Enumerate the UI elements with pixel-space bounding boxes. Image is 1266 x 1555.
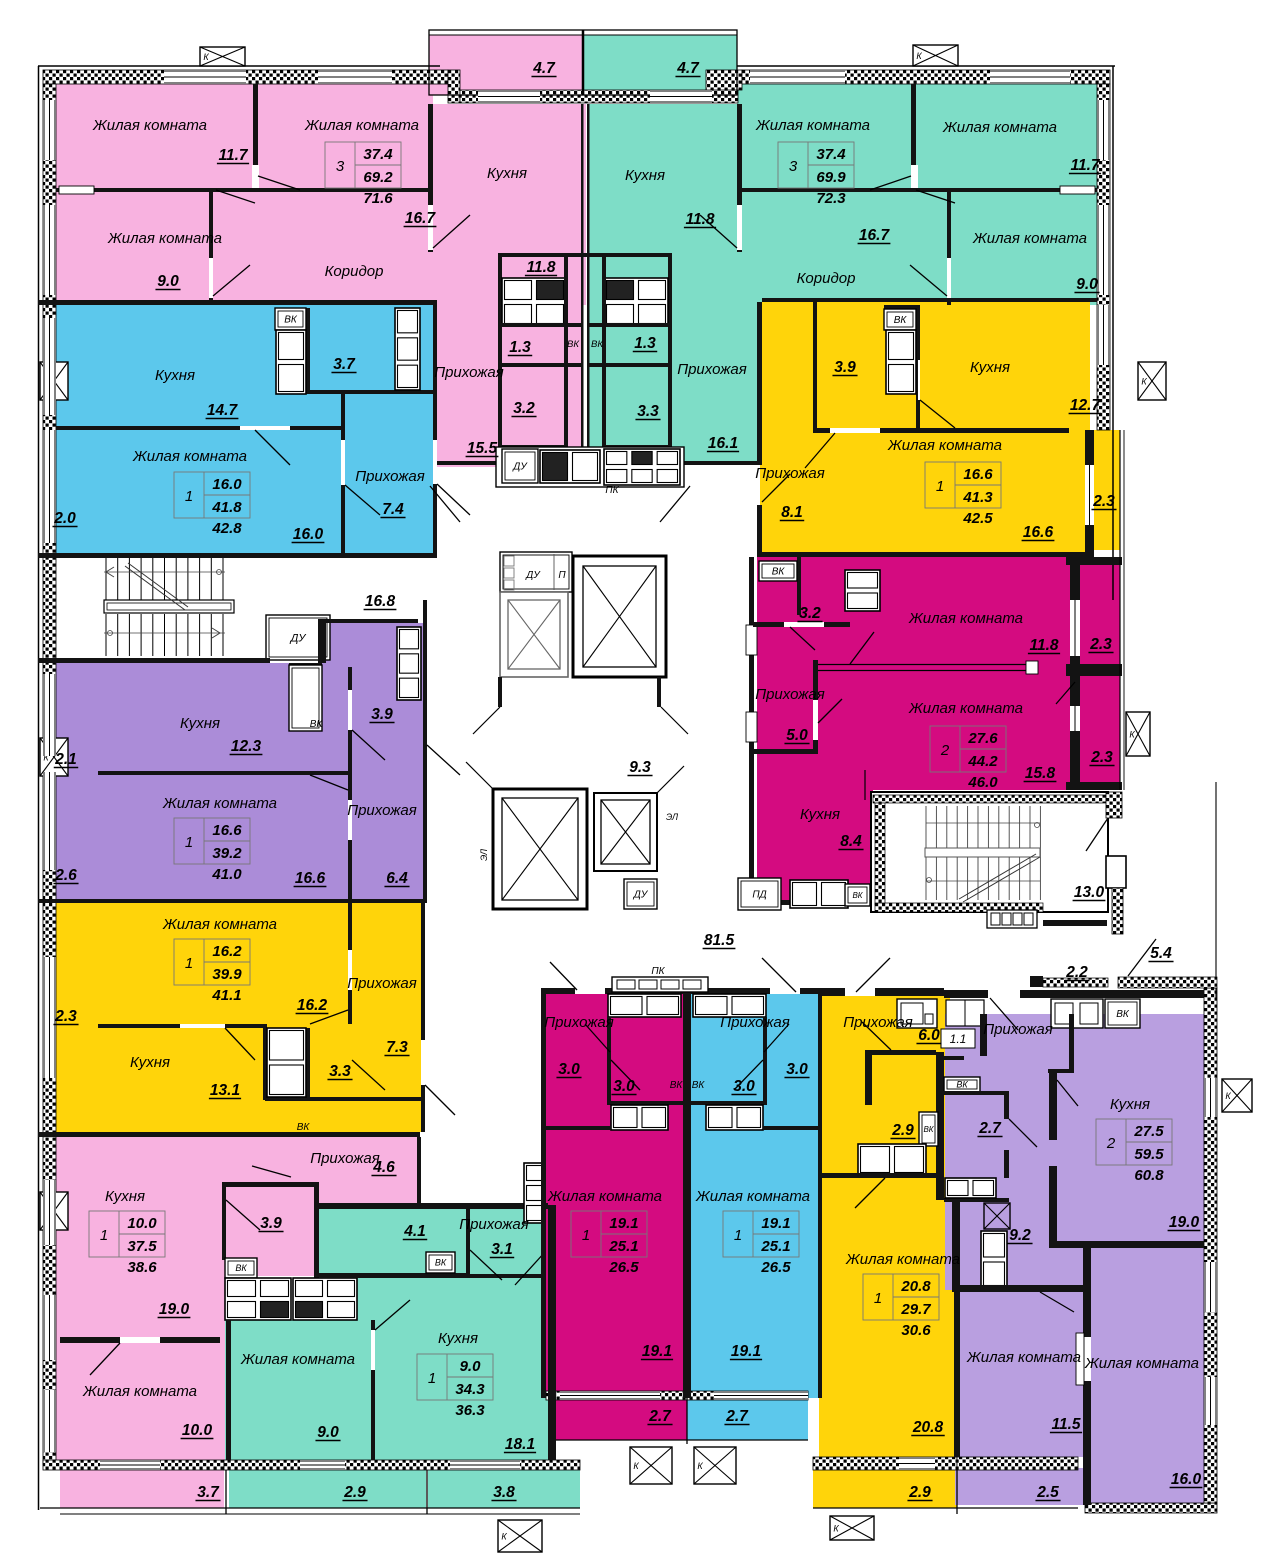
svg-text:1: 1 (185, 834, 193, 851)
svg-text:4.7: 4.7 (676, 60, 700, 77)
svg-text:Прихожая: Прихожая (677, 361, 747, 378)
svg-text:1: 1 (874, 1290, 882, 1307)
svg-text:Кухня: Кухня (800, 806, 840, 823)
svg-text:ПК: ПК (651, 966, 665, 977)
svg-text:37.5: 37.5 (127, 1238, 157, 1255)
svg-text:К: К (833, 1524, 839, 1534)
svg-text:К: К (1225, 1091, 1231, 1101)
svg-text:11.8: 11.8 (526, 259, 555, 276)
svg-text:2.5: 2.5 (1036, 1484, 1059, 1501)
svg-text:3.7: 3.7 (197, 1484, 220, 1501)
svg-text:3.0: 3.0 (613, 1078, 635, 1095)
svg-text:ВК: ВК (692, 1080, 706, 1091)
svg-text:Жилая комната: Жилая комната (162, 795, 277, 812)
svg-text:71.6: 71.6 (363, 190, 393, 207)
svg-text:16.6: 16.6 (295, 870, 326, 887)
svg-text:ВК: ВК (435, 1258, 447, 1268)
svg-text:ВК: ВК (1116, 1009, 1130, 1020)
svg-text:9.0: 9.0 (460, 1358, 482, 1375)
svg-text:41.8: 41.8 (211, 499, 242, 516)
svg-text:19.1: 19.1 (642, 1343, 672, 1360)
svg-text:Прихожая: Прихожая (983, 1021, 1053, 1038)
svg-text:ЭЛ: ЭЛ (666, 812, 679, 822)
svg-text:16.6: 16.6 (963, 466, 993, 483)
svg-text:9.0: 9.0 (1076, 276, 1098, 293)
svg-text:11.5: 11.5 (1051, 1416, 1080, 1433)
svg-text:16.0: 16.0 (1171, 1471, 1202, 1488)
svg-text:2.2: 2.2 (1065, 964, 1088, 981)
svg-text:ДУ: ДУ (633, 890, 649, 901)
svg-text:Кухня: Кухня (438, 1330, 478, 1347)
svg-text:37.4: 37.4 (816, 146, 846, 163)
svg-text:2.9: 2.9 (908, 1484, 931, 1501)
svg-text:19.1: 19.1 (761, 1215, 790, 1232)
svg-text:36.3: 36.3 (455, 1402, 485, 1419)
svg-text:Кухня: Кухня (970, 359, 1010, 376)
svg-text:3.7: 3.7 (333, 356, 356, 373)
svg-text:44.2: 44.2 (967, 753, 998, 770)
svg-text:16.0: 16.0 (212, 476, 242, 493)
svg-text:6.0: 6.0 (918, 1027, 940, 1044)
svg-text:2.3: 2.3 (1092, 493, 1115, 510)
svg-text:Жилая комната: Жилая комната (942, 119, 1057, 136)
svg-text:3.2: 3.2 (513, 400, 535, 417)
svg-text:3.9: 3.9 (260, 1215, 282, 1232)
svg-text:5.4: 5.4 (1150, 945, 1172, 962)
svg-text:ВК: ВК (235, 1263, 247, 1273)
svg-text:ВК: ВК (772, 567, 786, 578)
svg-text:ДУ: ДУ (525, 570, 541, 581)
svg-text:3.0: 3.0 (786, 1061, 808, 1078)
svg-text:5.0: 5.0 (786, 727, 808, 744)
svg-text:3.1: 3.1 (491, 1241, 513, 1258)
svg-text:7.4: 7.4 (382, 501, 404, 518)
svg-text:18.1: 18.1 (505, 1436, 535, 1453)
svg-text:41.0: 41.0 (211, 866, 242, 883)
svg-text:Прихожая: Прихожая (843, 1014, 913, 1031)
svg-text:19.0: 19.0 (1169, 1214, 1200, 1231)
svg-text:К: К (501, 1532, 507, 1542)
svg-text:10.0: 10.0 (182, 1422, 213, 1439)
svg-text:1: 1 (936, 478, 944, 495)
svg-text:27.6: 27.6 (967, 730, 998, 747)
svg-text:3.0: 3.0 (733, 1078, 755, 1095)
svg-text:2.7: 2.7 (725, 1408, 749, 1425)
svg-text:16.2: 16.2 (212, 943, 242, 960)
svg-text:8.4: 8.4 (840, 833, 862, 850)
svg-text:9.0: 9.0 (157, 273, 179, 290)
svg-text:Жилая комната: Жилая комната (132, 448, 247, 465)
svg-text:ЭЛ: ЭЛ (479, 848, 489, 861)
svg-text:ВК: ВК (297, 1122, 311, 1133)
svg-text:25.1: 25.1 (608, 1238, 638, 1255)
svg-text:42.5: 42.5 (962, 510, 993, 527)
svg-text:Жилая комната: Жилая комната (887, 437, 1002, 454)
svg-text:38.6: 38.6 (127, 1259, 157, 1276)
svg-text:11.7: 11.7 (218, 147, 248, 164)
svg-text:16.6: 16.6 (212, 822, 242, 839)
svg-text:81.5: 81.5 (704, 932, 735, 949)
svg-text:41.1: 41.1 (211, 987, 241, 1004)
svg-text:Кухня: Кухня (487, 165, 527, 182)
svg-text:9.2: 9.2 (1009, 1227, 1031, 1244)
svg-text:Кухня: Кухня (155, 367, 195, 384)
svg-text:1.3: 1.3 (634, 335, 656, 352)
svg-text:ВК: ВК (567, 339, 580, 350)
svg-text:Коридор: Коридор (325, 263, 384, 280)
svg-text:9.3: 9.3 (629, 759, 651, 776)
svg-text:3.0: 3.0 (558, 1061, 580, 1078)
svg-text:2.0: 2.0 (53, 510, 76, 527)
svg-text:1: 1 (428, 1370, 436, 1387)
svg-text:2.3: 2.3 (54, 1008, 77, 1025)
svg-text:2.7: 2.7 (978, 1120, 1002, 1137)
svg-text:8.1: 8.1 (781, 504, 803, 521)
svg-text:16.7: 16.7 (405, 210, 437, 227)
svg-text:16.7: 16.7 (859, 227, 891, 244)
svg-text:1: 1 (185, 955, 193, 972)
svg-text:13.1: 13.1 (210, 1082, 240, 1099)
svg-text:4.1: 4.1 (403, 1223, 426, 1240)
svg-text:ВК: ВК (310, 719, 324, 730)
svg-text:26.5: 26.5 (760, 1259, 791, 1276)
svg-text:7.3: 7.3 (386, 1039, 408, 1056)
svg-text:2.9: 2.9 (891, 1122, 914, 1139)
svg-text:Кухня: Кухня (625, 167, 665, 184)
svg-text:Жилая комната: Жилая комната (845, 1251, 960, 1268)
svg-text:Кухня: Кухня (105, 1188, 145, 1205)
svg-text:3.3: 3.3 (637, 403, 659, 420)
svg-text:39.9: 39.9 (212, 966, 242, 983)
svg-text:69.9: 69.9 (816, 169, 846, 186)
svg-text:Прихожая: Прихожая (720, 1014, 790, 1031)
svg-text:Прихожая: Прихожая (544, 1014, 614, 1031)
svg-text:19.0: 19.0 (159, 1301, 190, 1318)
svg-text:30.6: 30.6 (901, 1322, 931, 1339)
svg-text:19.1: 19.1 (731, 1343, 761, 1360)
svg-text:ДУ: ДУ (512, 462, 528, 473)
svg-text:Прихожая: Прихожая (755, 465, 825, 482)
svg-text:К: К (203, 52, 209, 62)
svg-text:59.5: 59.5 (1134, 1146, 1164, 1163)
svg-text:Прихожая: Прихожая (347, 802, 417, 819)
svg-text:Жилая комната: Жилая комната (240, 1351, 355, 1368)
svg-text:16.8: 16.8 (365, 593, 396, 610)
svg-text:15.8: 15.8 (1025, 765, 1056, 782)
svg-text:Прихожая: Прихожая (459, 1216, 529, 1233)
svg-text:1: 1 (582, 1227, 590, 1244)
svg-text:29.7: 29.7 (900, 1301, 931, 1318)
svg-text:Прихожая: Прихожая (310, 1150, 380, 1167)
svg-text:9.0: 9.0 (317, 1424, 339, 1441)
svg-text:ПД: ПД (752, 890, 766, 901)
svg-text:20.8: 20.8 (900, 1278, 931, 1295)
svg-text:34.3: 34.3 (455, 1381, 485, 1398)
svg-text:2.3: 2.3 (1089, 636, 1112, 653)
svg-text:Жилая комната: Жилая комната (972, 230, 1087, 247)
svg-text:16.6: 16.6 (1023, 524, 1054, 541)
svg-text:Коридор: Коридор (797, 270, 856, 287)
svg-text:1.3: 1.3 (509, 339, 531, 356)
svg-text:69.2: 69.2 (363, 169, 393, 186)
svg-text:3.9: 3.9 (834, 359, 856, 376)
svg-text:12.7: 12.7 (1070, 397, 1102, 414)
svg-text:К: К (916, 51, 922, 61)
svg-text:К: К (1141, 377, 1147, 387)
svg-text:3: 3 (336, 158, 345, 175)
svg-text:3.3: 3.3 (329, 1063, 351, 1080)
svg-text:ВК: ВК (670, 1080, 684, 1091)
svg-text:К: К (1129, 730, 1135, 740)
svg-text:2.6: 2.6 (54, 867, 77, 884)
svg-text:25.1: 25.1 (760, 1238, 790, 1255)
svg-text:72.3: 72.3 (816, 190, 846, 207)
svg-text:39.2: 39.2 (212, 845, 242, 862)
svg-text:11.7: 11.7 (1070, 157, 1100, 174)
svg-text:Жилая комната: Жилая комната (1084, 1355, 1199, 1372)
svg-text:ВК: ВК (852, 891, 863, 900)
svg-text:13.0: 13.0 (1074, 884, 1105, 901)
svg-text:Жилая комната: Жилая комната (908, 700, 1023, 717)
svg-text:Кухня: Кухня (130, 1054, 170, 1071)
svg-text:46.0: 46.0 (967, 774, 998, 791)
svg-text:Прихожая: Прихожая (355, 468, 425, 485)
svg-text:Жилая комната: Жилая комната (908, 610, 1023, 627)
svg-text:11.8: 11.8 (1029, 637, 1058, 654)
svg-text:20.8: 20.8 (912, 1419, 944, 1436)
svg-text:3: 3 (789, 158, 798, 175)
svg-text:К: К (697, 1461, 703, 1471)
svg-text:ВК: ВК (894, 315, 908, 326)
svg-text:6.4: 6.4 (386, 870, 408, 887)
svg-text:14.7: 14.7 (207, 402, 239, 419)
svg-text:ПК: ПК (605, 485, 619, 496)
svg-text:2: 2 (1106, 1135, 1116, 1152)
svg-text:3.2: 3.2 (799, 605, 821, 622)
svg-text:19.1: 19.1 (609, 1215, 638, 1232)
svg-text:ВК: ВК (923, 1125, 934, 1134)
svg-text:ВК: ВК (284, 315, 298, 326)
svg-text:Жилая комната: Жилая комната (547, 1188, 662, 1205)
svg-text:Жилая комната: Жилая комната (82, 1383, 197, 1400)
svg-text:37.4: 37.4 (363, 146, 393, 163)
svg-text:Жилая комната: Жилая комната (92, 117, 207, 134)
svg-text:2.3: 2.3 (1090, 749, 1113, 766)
svg-text:ДУ: ДУ (289, 632, 307, 644)
svg-text:Жилая комната: Жилая комната (695, 1188, 810, 1205)
svg-text:15.5: 15.5 (467, 440, 498, 457)
svg-text:2.1: 2.1 (54, 751, 77, 768)
svg-text:Жилая комната: Жилая комната (966, 1349, 1081, 1366)
svg-text:К: К (633, 1461, 639, 1471)
svg-text:26.5: 26.5 (608, 1259, 639, 1276)
svg-text:Кухня: Кухня (1110, 1096, 1150, 1113)
svg-text:Жилая комната: Жилая комната (162, 916, 277, 933)
svg-text:Прихожая: Прихожая (434, 364, 504, 381)
svg-text:Жилая комната: Жилая комната (107, 230, 222, 247)
svg-text:41.3: 41.3 (962, 489, 993, 506)
svg-text:16.0: 16.0 (293, 526, 324, 543)
svg-text:2.7: 2.7 (648, 1408, 672, 1425)
svg-text:1: 1 (734, 1227, 742, 1244)
svg-text:16.1: 16.1 (708, 435, 738, 452)
svg-text:2.9: 2.9 (343, 1484, 366, 1501)
svg-text:1: 1 (100, 1227, 108, 1244)
svg-text:1.1: 1.1 (950, 1032, 967, 1046)
svg-text:Жилая комната: Жилая комната (755, 117, 870, 134)
svg-text:16.2: 16.2 (297, 997, 328, 1014)
svg-text:27.5: 27.5 (1133, 1123, 1164, 1140)
svg-text:ВК: ВК (956, 1080, 968, 1090)
svg-text:3.9: 3.9 (371, 706, 393, 723)
svg-text:42.8: 42.8 (211, 520, 242, 537)
svg-text:10.0: 10.0 (127, 1215, 157, 1232)
svg-text:4.7: 4.7 (532, 60, 556, 77)
svg-text:Прихожая: Прихожая (755, 686, 825, 703)
svg-text:60.8: 60.8 (1134, 1167, 1164, 1184)
svg-text:П: П (558, 570, 566, 581)
svg-text:Прихожая: Прихожая (347, 975, 417, 992)
svg-text:ВК: ВК (591, 339, 604, 350)
svg-text:1: 1 (185, 488, 193, 505)
svg-text:Кухня: Кухня (180, 715, 220, 732)
svg-text:12.3: 12.3 (231, 738, 262, 755)
svg-text:2: 2 (940, 742, 950, 759)
svg-text:11.8: 11.8 (685, 211, 714, 228)
svg-text:3.8: 3.8 (493, 1484, 515, 1501)
svg-text:Жилая комната: Жилая комната (304, 117, 419, 134)
svg-text:4.6: 4.6 (372, 1159, 395, 1176)
